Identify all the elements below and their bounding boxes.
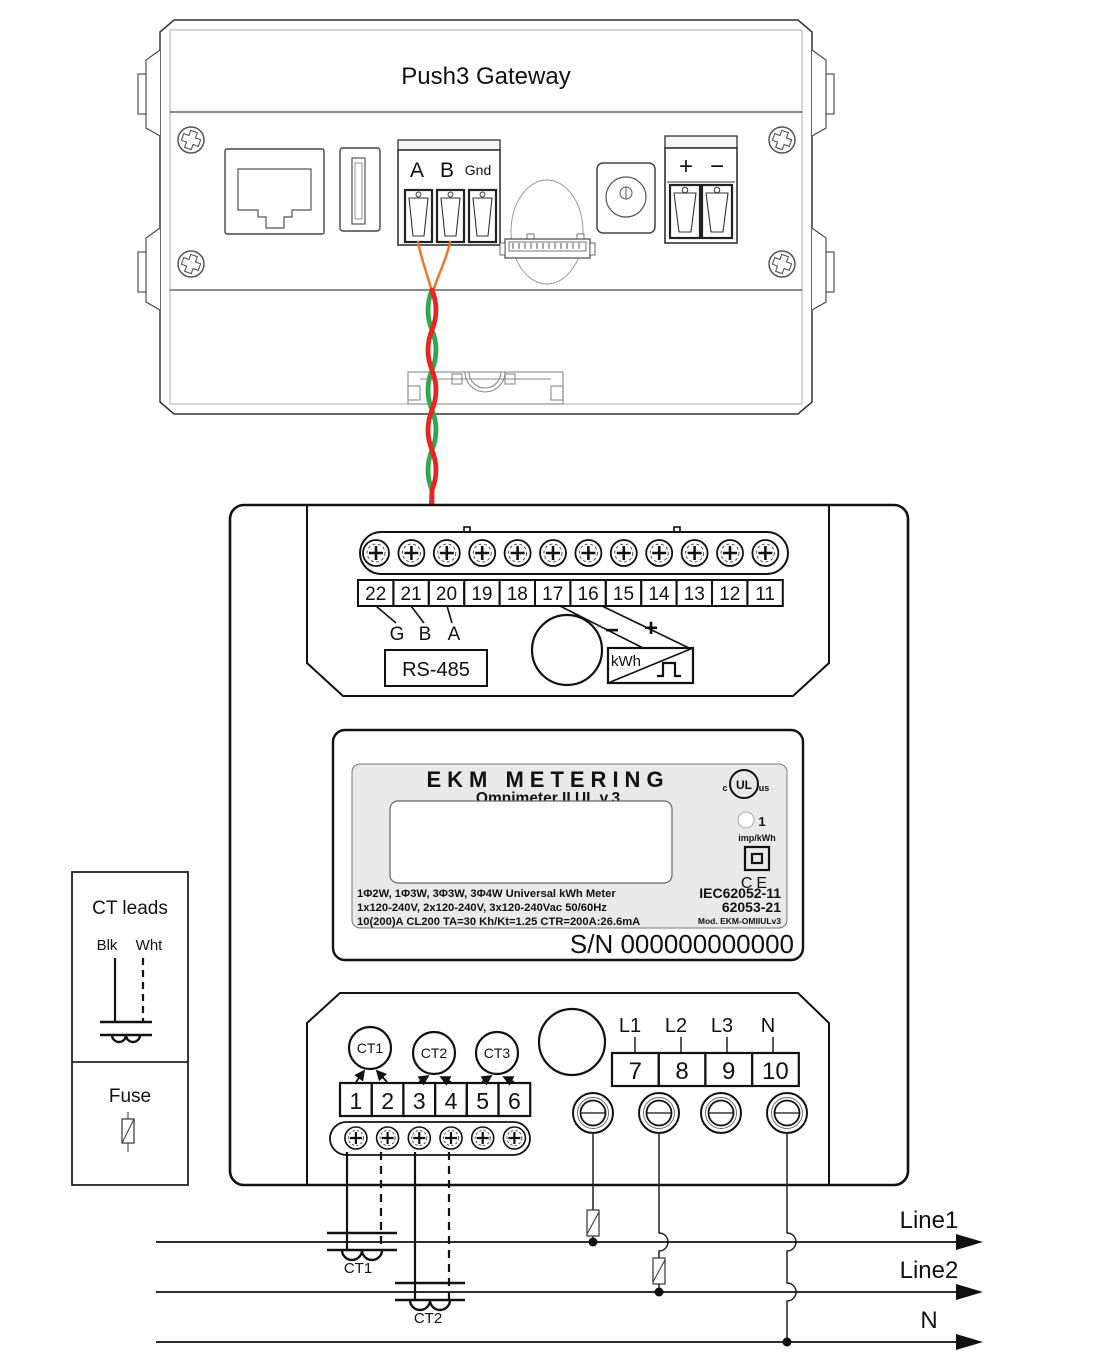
terminal-number: 18: [507, 584, 528, 605]
spec-line-3: 10(200)A CL200 TA=30 Kh/Kt=1.25 CTR=200A…: [357, 916, 640, 928]
power-jack-icon: [597, 163, 655, 233]
ct-port-label: CT3: [484, 1045, 511, 1061]
terminal-a-label: A: [410, 159, 424, 182]
screw-icon: [178, 251, 204, 277]
terminal-number: 19: [471, 584, 492, 605]
line-input-label: L2: [665, 1015, 687, 1037]
serial-number: S/N 000000000000: [570, 929, 794, 959]
junction-dot: [783, 1338, 792, 1347]
line-input-label: L3: [711, 1015, 733, 1037]
ct1-label: CT1: [344, 1260, 372, 1277]
pulse-led-icon: [738, 812, 754, 828]
arrow-icon: [956, 1234, 983, 1250]
arrow-icon: [956, 1284, 983, 1300]
fuse-label: Fuse: [109, 1086, 151, 1107]
terminal-number: 22: [365, 584, 386, 605]
led-value: 1: [758, 814, 765, 829]
gateway-device: Push3 Gateway A B Gnd: [138, 20, 834, 414]
ct-terminal-number: 4: [445, 1088, 458, 1114]
rs485-label: RS-485: [402, 659, 470, 681]
neutral-label: N: [920, 1307, 937, 1334]
terminal-number: 12: [719, 584, 740, 605]
line-input-label: L1: [619, 1015, 641, 1037]
ct-port-label: CT2: [421, 1045, 448, 1061]
terminal-number: 17: [542, 584, 563, 605]
cert-line-3: Mod. EKM-OMIIULv3: [698, 916, 781, 926]
ct-terminal-number: 5: [476, 1088, 489, 1114]
line-input-label: N: [761, 1015, 775, 1037]
ct-port-label: CT1: [357, 1040, 384, 1056]
terminal-number: 21: [401, 584, 422, 605]
svg-text:c: c: [722, 783, 727, 793]
meter-device: 22 21 20 19 18 17 16 15 14 13 12 11 G B …: [230, 505, 908, 1185]
terminal-number: 15: [613, 584, 634, 605]
terminal-number: 11: [755, 584, 775, 605]
ct1-symbol-icon: [327, 1233, 397, 1260]
svg-text:UL: UL: [736, 778, 752, 792]
spec-line-2: 1x120-240V, 2x120-240V, 3x120-240Vac 50/…: [357, 902, 607, 914]
mounting-hole: [532, 615, 602, 685]
terminal-number: 16: [578, 584, 599, 605]
terminal-gnd-label: Gnd: [465, 162, 491, 178]
line-terminal-number: 7: [629, 1058, 642, 1085]
terminal-number: 20: [436, 584, 457, 605]
terminal-number: 13: [684, 584, 705, 605]
meter-nameplate: EKM METERING Omnimeter II UL v.3 UL c us…: [333, 730, 803, 960]
wiring-diagram: Push3 Gateway A B Gnd: [0, 0, 1100, 1365]
power-minus-label: −: [710, 153, 724, 180]
screw-icon: [769, 127, 795, 153]
spec-line-1: 1Φ2W, 1Φ3W, 3Φ3W, 3Φ4W Universal kWh Met…: [357, 888, 616, 900]
usb-port-icon: [340, 148, 380, 231]
terminal-number: 14: [648, 584, 670, 605]
junction-dot: [655, 1288, 664, 1297]
ct-terminal-number: 1: [350, 1088, 363, 1114]
screw-icon: [178, 127, 204, 153]
power-plus-label: +: [679, 153, 693, 180]
ct2-label: CT2: [414, 1310, 442, 1327]
line2-label: Line2: [900, 1257, 959, 1284]
legend-box: CT leads Blk Wht Fuse: [72, 872, 188, 1185]
line-terminal-number: 8: [675, 1058, 688, 1085]
gateway-rs485-block: A B Gnd: [398, 140, 500, 245]
svg-text:us: us: [759, 783, 770, 793]
brand-logo: EKM METERING: [426, 767, 669, 792]
legend-title: CT leads: [92, 898, 168, 919]
rs485-pin-b: B: [419, 624, 432, 645]
ct-ports: CT1 CT2 CT3: [349, 1027, 518, 1074]
line-terminal-number: 10: [762, 1058, 789, 1085]
line1-label: Line1: [900, 1207, 959, 1234]
terminal-b-label: B: [440, 159, 454, 182]
ct-terminal-number: 6: [508, 1088, 521, 1114]
ct-terminal-number: 2: [381, 1088, 394, 1114]
gateway-title: Push3 Gateway: [401, 63, 570, 90]
ct2-symbol-icon: [395, 1283, 465, 1310]
kwh-pulse-box: kWh: [608, 648, 693, 683]
white-lead-label: Wht: [136, 937, 164, 954]
pulse-minus-label: −: [605, 617, 619, 644]
pulse-plus-label: +: [644, 615, 658, 642]
led-unit: imp/kWh: [738, 833, 776, 843]
gateway-power-block: + −: [665, 136, 737, 243]
black-lead-label: Blk: [97, 937, 118, 954]
arrow-icon: [956, 1334, 983, 1350]
cert-line-2: 62053-21: [722, 899, 781, 915]
inline-fuse-icon: [653, 1258, 665, 1284]
ethernet-port-icon: [225, 149, 324, 234]
kwh-label: kWh: [611, 653, 641, 670]
junction-dot: [589, 1238, 598, 1247]
rs485-pin-g: G: [390, 624, 405, 645]
ct-terminal-number: 3: [413, 1088, 426, 1114]
rs485-pin-a: A: [448, 624, 461, 645]
lcd-display: [390, 801, 672, 883]
line-terminal-number: 9: [722, 1058, 735, 1085]
mounting-hole: [539, 1009, 605, 1075]
screw-icon: [769, 251, 795, 277]
inline-fuse-icon: [587, 1210, 599, 1236]
